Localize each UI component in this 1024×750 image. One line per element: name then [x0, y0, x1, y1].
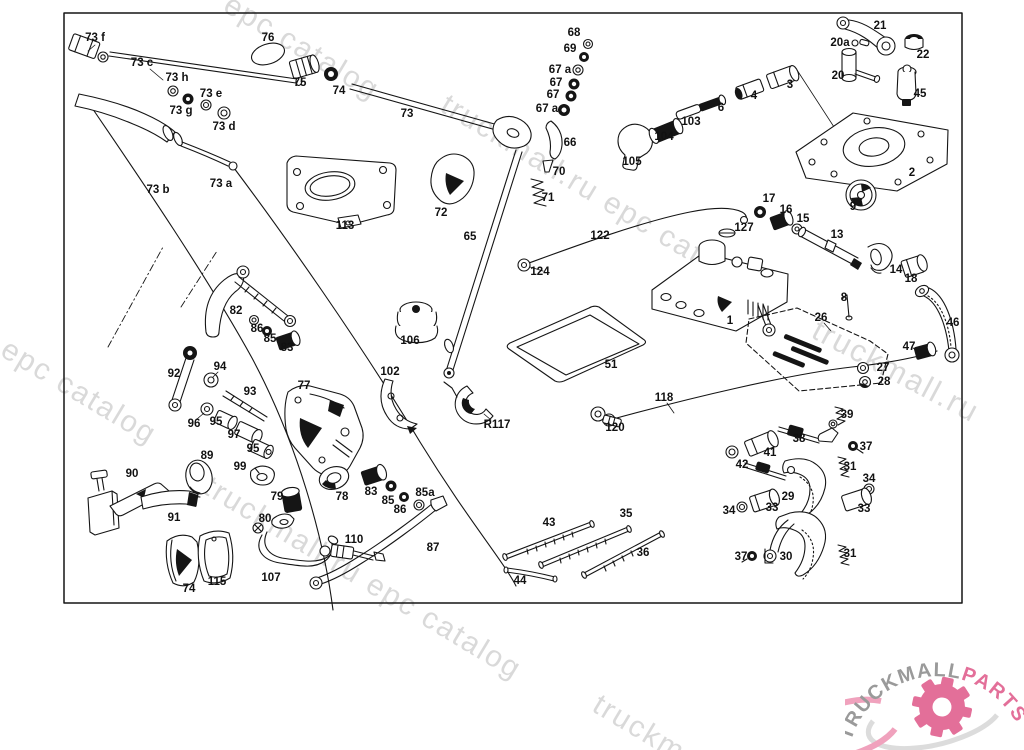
- part-label-89-71: 89: [201, 450, 214, 462]
- part-label-65-23: 65: [464, 231, 477, 243]
- part-label-2-35: 2: [909, 167, 915, 179]
- part-label-73a-7: 73 a: [210, 178, 233, 190]
- diagram-border: [64, 13, 962, 603]
- part-label-18-47: 18: [905, 273, 918, 285]
- part-label-94-64: 94: [214, 361, 227, 373]
- part-label-83-78: 83: [365, 486, 378, 498]
- part-label-42-91: 42: [736, 459, 749, 471]
- part-label-93-65: 93: [244, 386, 257, 398]
- part-label-113-22: 113: [336, 220, 355, 232]
- part-label-27-51: 27: [877, 362, 890, 374]
- part-label-21-30: 21: [874, 20, 887, 32]
- part-label-106-58: 106: [400, 335, 419, 347]
- parts-catalog-page: epc catalogtruckmall.ru epc catalogtruck…: [0, 0, 1024, 750]
- part-label-47-50: 47: [903, 341, 916, 353]
- part-label-9-36: 9: [850, 201, 856, 213]
- part-label-92-63: 92: [168, 368, 181, 380]
- part-label-73g-4: 73 g: [169, 105, 192, 117]
- part-label-73-11: 73: [401, 108, 414, 120]
- part-label-69-13: 69: [564, 43, 577, 55]
- part-label-78-77: 78: [336, 491, 349, 503]
- part-label-73e-3: 73 e: [200, 88, 222, 100]
- part-label-29-97: 29: [782, 491, 795, 503]
- part-label-122-41: 122: [590, 230, 609, 242]
- part-label-73f-0: 73 f: [85, 32, 105, 44]
- part-label-22-32: 22: [917, 49, 930, 61]
- part-label-99-72: 99: [234, 461, 247, 473]
- part-label-26-48: 26: [815, 312, 828, 324]
- part-label-43-87: 43: [543, 517, 556, 529]
- part-label-13-40: 13: [831, 229, 844, 241]
- gasket-plate-113: [287, 156, 396, 228]
- part-label-45-34: 45: [914, 88, 927, 100]
- part-label-33-101: 33: [858, 503, 871, 515]
- part-label-8-45: 8: [841, 292, 848, 304]
- exploded-parts-diagram: 73 f73 c73 h73 e73 g73 d73 b73 a76757473…: [0, 0, 1024, 750]
- part-label-30-103: 30: [780, 551, 793, 563]
- part-label-6-27: 6: [718, 102, 724, 114]
- part-label-14-46: 14: [890, 264, 903, 276]
- part-label-35-88: 35: [620, 508, 633, 520]
- part-label-46-49: 46: [947, 317, 960, 329]
- part-label-20-33: 20: [832, 70, 845, 82]
- part-label-73b-6: 73 b: [146, 184, 169, 196]
- truckmall-logo: TRUCKMALLPARTS: [845, 645, 1024, 750]
- part-label-110-85: 110: [345, 534, 364, 546]
- part-label-76-8: 76: [262, 32, 275, 44]
- part-label-33-99: 33: [766, 502, 779, 514]
- part-label-91-74: 91: [168, 512, 181, 524]
- part-label-102-57: 102: [380, 366, 399, 378]
- part-label-R117-56: R117: [484, 419, 511, 431]
- part-label-87-86: 87: [427, 542, 440, 554]
- part-label-95-68: 95: [210, 416, 223, 428]
- part-label-75-9: 75: [294, 77, 307, 89]
- part-label-67a-14: 67 a: [549, 64, 572, 76]
- part-label-118-54: 118: [655, 392, 674, 404]
- part-label-127-42: 127: [734, 222, 753, 234]
- part-label-83-62: 83: [281, 342, 294, 354]
- part-label-97-69: 97: [228, 429, 241, 441]
- part-label-115-83: 115: [208, 576, 227, 588]
- part-label-79-75: 79: [271, 491, 284, 503]
- part-label-73c-1: 73 c: [131, 57, 154, 69]
- part-label-86-80: 86: [394, 504, 407, 516]
- part-label-31-96: 31: [844, 461, 857, 473]
- part-label-37-102: 37: [735, 551, 748, 563]
- shift-housing-77: [285, 386, 363, 476]
- part-label-44-90: 44: [514, 575, 527, 587]
- part-label-103-26: 103: [681, 116, 700, 128]
- part-label-66-18: 66: [564, 137, 577, 149]
- part-label-4-28: 4: [751, 90, 758, 102]
- part-label-34-100: 34: [863, 473, 876, 485]
- part-label-37-95: 37: [860, 441, 873, 453]
- part-label-120-55: 120: [605, 422, 624, 434]
- part-label-51-53: 51: [605, 359, 618, 371]
- part-label-73d-5: 73 d: [212, 121, 235, 133]
- part-label-105-24: 105: [622, 156, 642, 168]
- part-label-70-19: 70: [553, 166, 566, 178]
- part-label-77-66: 77: [298, 380, 311, 392]
- part-label-74-10: 74: [333, 85, 346, 97]
- part-label-85a-81: 85a: [415, 487, 435, 499]
- part-label-17-37: 17: [763, 193, 776, 205]
- part-label-104-25: 104: [654, 131, 674, 143]
- part-label-95-70: 95: [247, 443, 260, 455]
- part-label-67a-17: 67 a: [536, 103, 559, 115]
- part-label-16-38: 16: [780, 204, 793, 216]
- part-label-74-82: 74: [183, 583, 196, 595]
- part-label-67-16: 67: [547, 89, 560, 101]
- part-label-80-76: 80: [259, 513, 272, 525]
- part-label-72-21: 72: [435, 207, 448, 219]
- part-label-96-67: 96: [188, 418, 201, 430]
- part-label-73h-2: 73 h: [165, 72, 188, 84]
- part-label-67-15: 67: [550, 77, 563, 89]
- housing-cover-2: [796, 113, 948, 210]
- part-label-86-60: 86: [251, 323, 264, 335]
- part-label-90-73: 90: [126, 468, 139, 480]
- part-label-82-59: 82: [230, 305, 243, 317]
- part-label-107-84: 107: [261, 572, 280, 584]
- part-label-124-43: 124: [530, 266, 550, 278]
- part-label-36-89: 36: [637, 547, 650, 559]
- part-label-1-44: 1: [727, 315, 734, 327]
- part-label-38-93: 38: [793, 433, 806, 445]
- part-label-71-20: 71: [542, 192, 555, 204]
- part-label-34-98: 34: [723, 505, 736, 517]
- part-label-85-61: 85: [264, 333, 277, 345]
- part-label-28-52: 28: [878, 376, 891, 388]
- part-label-68-12: 68: [568, 27, 581, 39]
- part-label-3-29: 3: [787, 79, 793, 91]
- part-label-41-92: 41: [764, 447, 777, 459]
- part-label-39-94: 39: [841, 409, 854, 421]
- part-label-15-39: 15: [797, 213, 810, 225]
- part-label-31-104: 31: [844, 548, 857, 560]
- part-label-20a-31: 20a: [830, 37, 850, 49]
